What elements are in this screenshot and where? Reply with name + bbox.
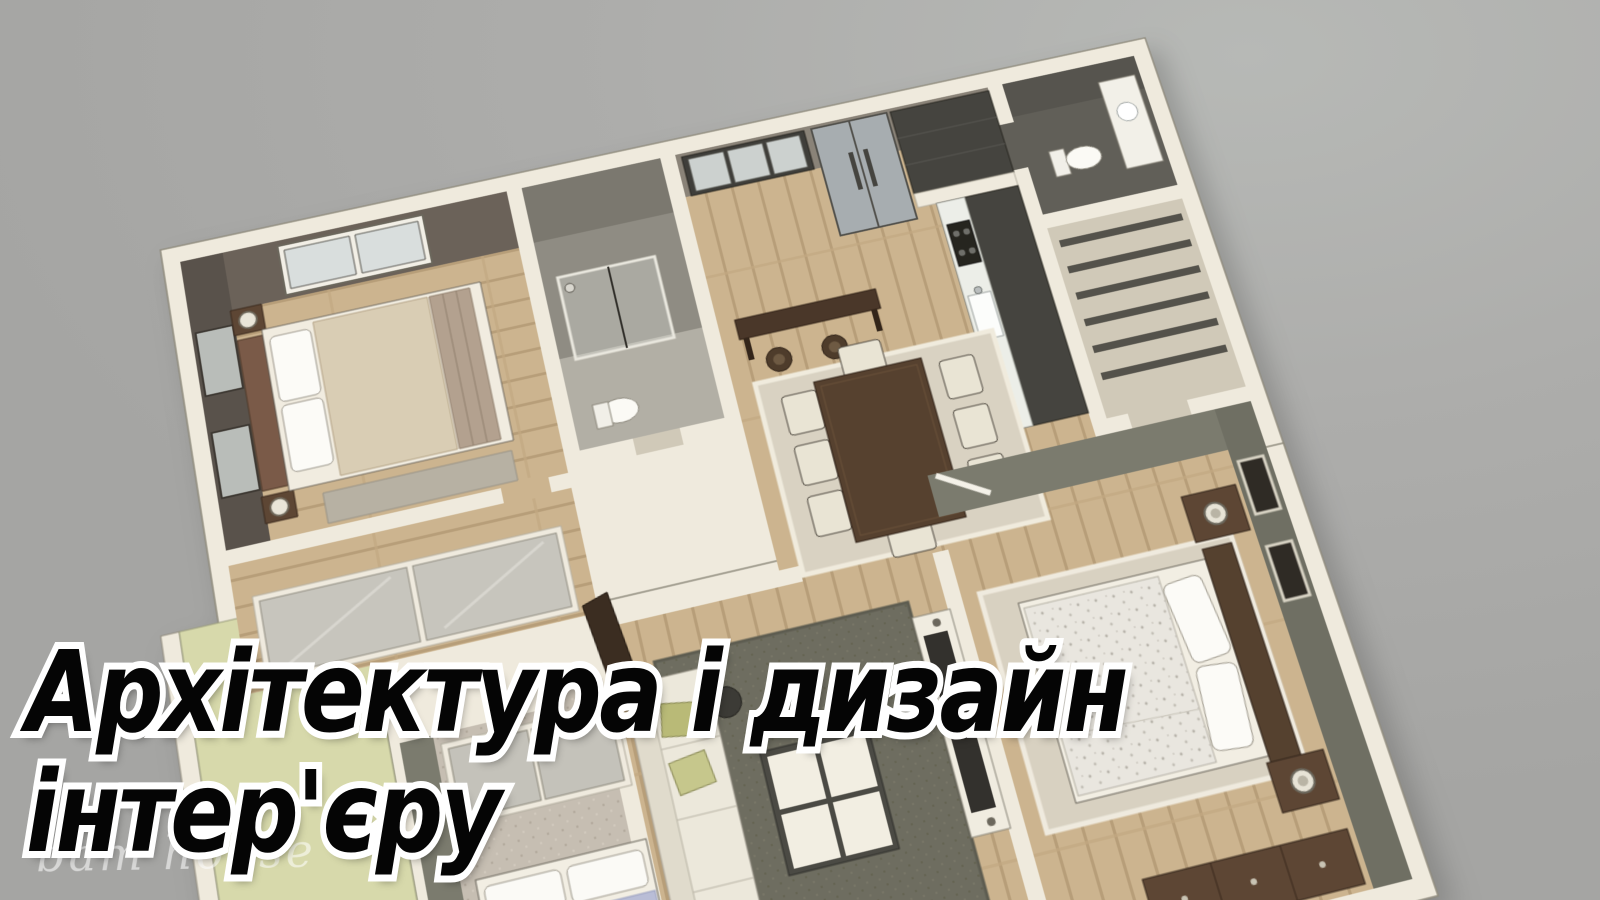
title-line-2-text: інтер'єру bbox=[26, 748, 499, 878]
title-line-1-text: Архітектура і дизайн bbox=[26, 628, 1126, 758]
title-line-1: Архітектура і дизайн Архітектура і дизай… bbox=[26, 628, 1126, 758]
title-line-2: інтер'єру інтер'єру bbox=[26, 748, 499, 878]
video-frame: bam house Архітектура і дизайн Архітекту… bbox=[0, 0, 1600, 900]
